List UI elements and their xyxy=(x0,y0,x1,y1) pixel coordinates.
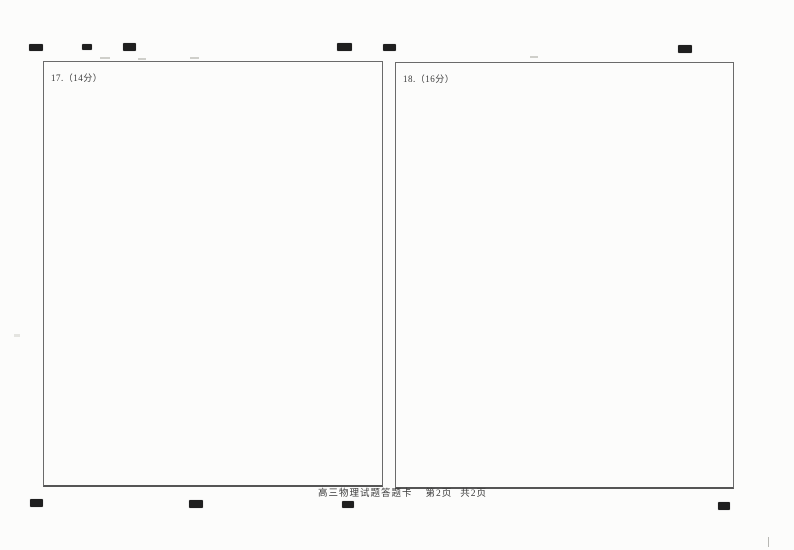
registration-mark xyxy=(189,500,203,508)
registration-mark xyxy=(342,501,354,508)
registration-mark xyxy=(383,44,396,51)
registration-mark xyxy=(29,44,43,51)
scanned-answer-sheet: { "document": { "answer_boxes": [ { "lab… xyxy=(0,0,794,550)
footer-total-pages: 共2页 xyxy=(460,489,487,499)
answer-box-question-17: 17.（14分） xyxy=(43,61,383,487)
scan-artifact xyxy=(138,58,146,60)
scan-artifact xyxy=(14,334,20,337)
scan-artifact xyxy=(530,56,538,58)
registration-mark xyxy=(718,502,730,510)
registration-mark xyxy=(123,43,136,51)
registration-mark xyxy=(337,43,352,51)
answer-box-question-18: 18.（16分） xyxy=(395,62,734,489)
scan-artifact xyxy=(768,537,769,547)
registration-mark xyxy=(30,499,43,507)
scan-artifact xyxy=(100,57,110,59)
footer-document-title: 高三物理试题答题卡 xyxy=(318,489,413,499)
registration-mark xyxy=(678,45,692,53)
scan-artifact xyxy=(190,57,199,59)
page-footer: 高三物理试题答题卡第2页共2页 xyxy=(318,485,487,499)
registration-mark xyxy=(82,44,92,50)
question-18-label: 18.（16分） xyxy=(403,72,454,85)
footer-page-number: 第2页 xyxy=(426,489,453,499)
question-17-label: 17.（14分） xyxy=(51,71,102,84)
